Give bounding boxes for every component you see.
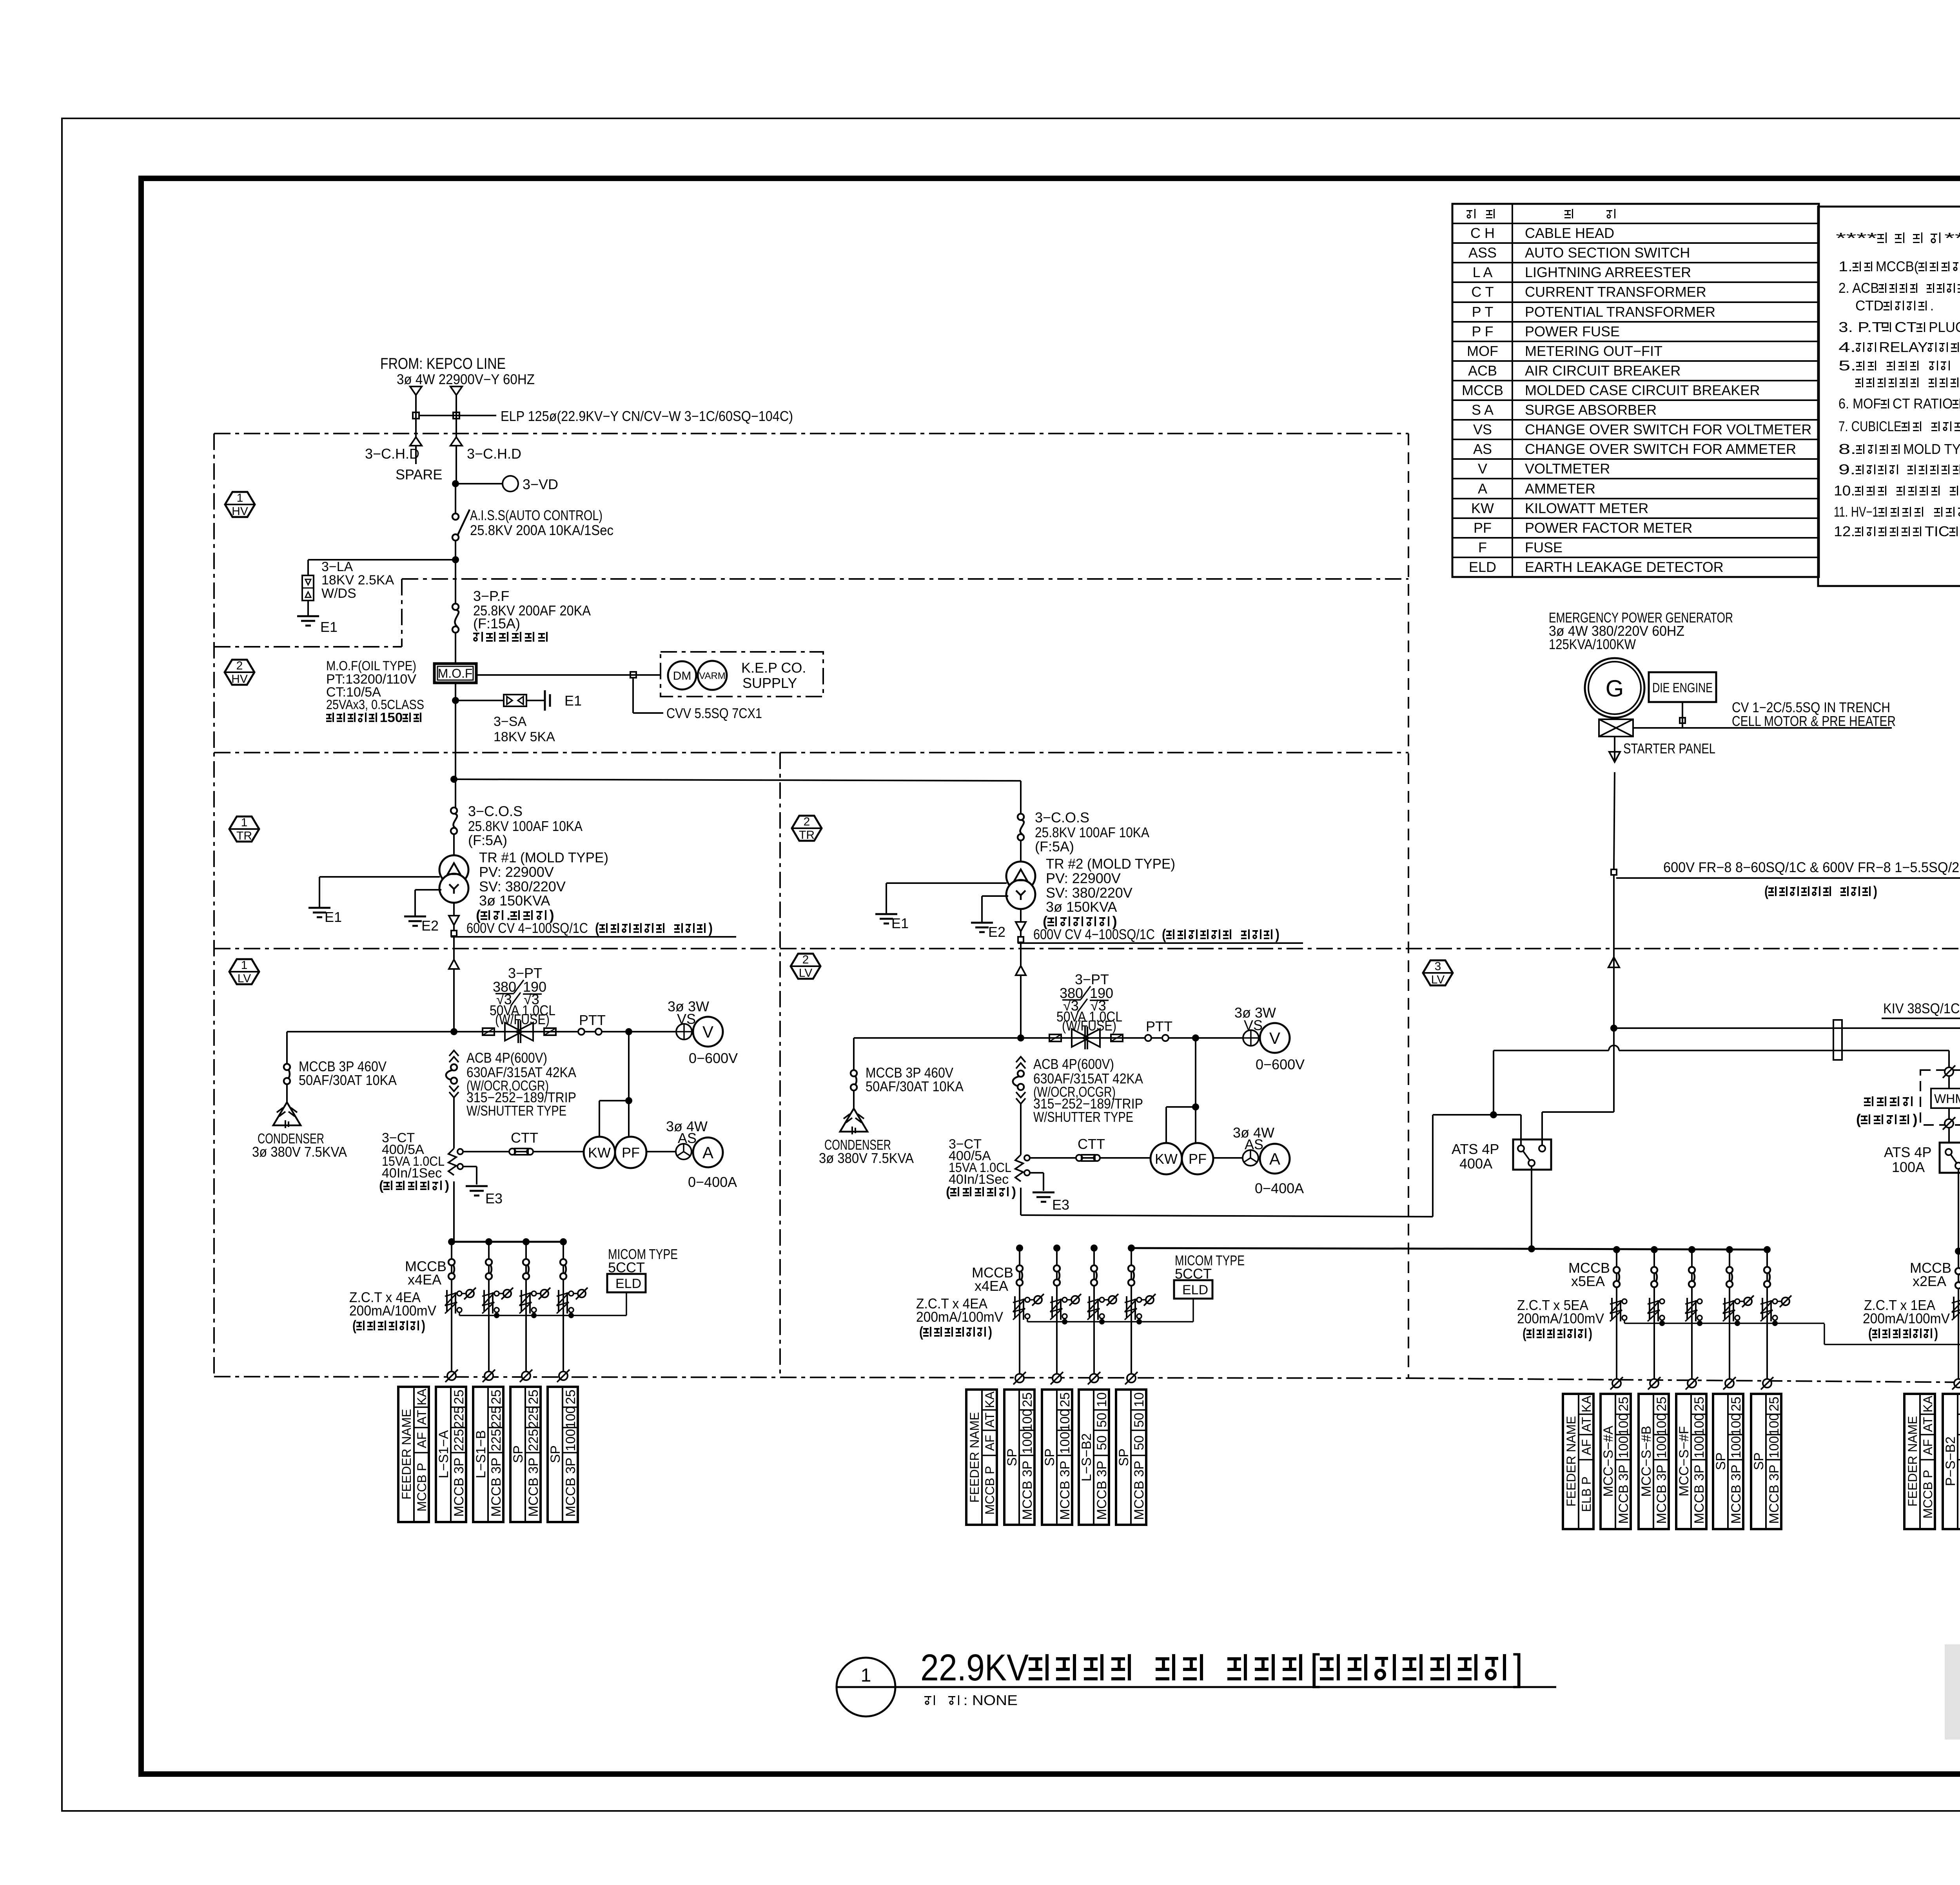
svg-text:FEEDER NAME: FEEDER NAME	[967, 1412, 982, 1502]
svg-text:PLUG−IN TYPE TEST: PLUG−IN TYPE TEST	[1929, 319, 1960, 335]
svg-text:MCCB 3P: MCCB 3P	[1767, 1464, 1782, 1524]
svg-text:(: (	[379, 1178, 384, 1193]
svg-text:40In/1Sec: 40In/1Sec	[382, 1166, 442, 1181]
svg-text:MCCB 3P: MCCB 3P	[1692, 1464, 1707, 1524]
svg-text:MCCB P: MCCB P	[415, 1463, 429, 1511]
svg-text:100: 100	[1020, 1432, 1035, 1454]
svg-text:18KV 2.5KA: 18KV 2.5KA	[321, 573, 394, 588]
svg-text:TR: TR	[236, 829, 252, 842]
svg-text:CT: CT	[1895, 319, 1916, 335]
svg-text:AT: AT	[1921, 1417, 1935, 1432]
svg-text:200mA/100mV: 200mA/100mV	[1863, 1310, 1950, 1326]
svg-text:AT: AT	[415, 1410, 429, 1425]
svg-text:100: 100	[1767, 1436, 1782, 1459]
svg-text:(F:5A): (F:5A)	[468, 832, 507, 848]
svg-text:C T: C T	[1471, 284, 1494, 300]
svg-text:25.8KV 200A 10KA/1Sec: 25.8KV 200A 10KA/1Sec	[470, 522, 613, 538]
svg-text:AMMETER: AMMETER	[1525, 481, 1595, 497]
svg-text:5CCT: 5CCT	[608, 1259, 645, 1275]
svg-text:10.: 10.	[1834, 483, 1855, 499]
svg-text:100A: 100A	[1892, 1159, 1925, 1175]
svg-text:(W/FUSE): (W/FUSE)	[495, 1011, 550, 1027]
svg-text:0−400A: 0−400A	[688, 1174, 737, 1190]
svg-text:1: 1	[861, 1665, 871, 1686]
svg-text:): )	[988, 1324, 992, 1340]
svg-text:25: 25	[1616, 1397, 1631, 1411]
svg-text:]: ]	[1513, 1647, 1523, 1689]
svg-text:7. CUBICLE: 7. CUBICLE	[1838, 418, 1902, 434]
svg-text:1.: 1.	[1838, 258, 1853, 274]
svg-text:A: A	[1269, 1150, 1280, 1168]
svg-text:ACB 4P(600V): ACB 4P(600V)	[1033, 1056, 1114, 1072]
svg-text:): )	[1588, 1325, 1592, 1341]
svg-text:TR #1 (MOLD TYPE): TR #1 (MOLD TYPE)	[479, 849, 608, 865]
svg-text:E3: E3	[1052, 1197, 1069, 1213]
svg-text:25: 25	[563, 1390, 578, 1404]
svg-text:HV: HV	[232, 505, 248, 518]
svg-text:25: 25	[1058, 1392, 1073, 1407]
svg-text:L−S1−A: L−S1−A	[436, 1430, 451, 1478]
svg-text:): )	[1012, 1185, 1016, 1199]
svg-text:0−600V: 0−600V	[689, 1050, 738, 1066]
svg-text:TIC: TIC	[1925, 523, 1949, 539]
svg-text:225: 225	[526, 1406, 541, 1429]
svg-text:SUPPLY: SUPPLY	[742, 675, 797, 691]
svg-text:ELP 125ø(22.9KV−Y CN/CV−W 3: ELP 125ø(22.9KV−Y CN/CV−W 3−1C/60SQ−104C…	[501, 408, 793, 424]
svg-text:25: 25	[1020, 1392, 1035, 1407]
svg-text:): )	[445, 1178, 449, 1193]
svg-text:.: .	[1930, 298, 1934, 314]
svg-text:MOF: MOF	[1467, 343, 1498, 359]
svg-text:3−C.O.S: 3−C.O.S	[1035, 809, 1089, 825]
svg-text:3ø 380V 7.5KVA: 3ø 380V 7.5KVA	[252, 1144, 347, 1160]
svg-text:12.: 12.	[1834, 523, 1855, 539]
svg-text:ELD: ELD	[615, 1276, 641, 1291]
svg-text:FEEDER NAME: FEEDER NAME	[399, 1409, 414, 1499]
svg-text:11. HV−1: 11. HV−1	[1834, 504, 1878, 520]
svg-text:AF: AF	[1921, 1439, 1935, 1455]
svg-text:KIV 38SQ/1Cx4L: KIV 38SQ/1Cx4L	[1883, 1000, 1960, 1016]
svg-text:****: ****	[1836, 230, 1877, 247]
svg-text:ATS 4P: ATS 4P	[1452, 1141, 1499, 1157]
svg-text:MCC−S−#B: MCC−S−#B	[1639, 1426, 1654, 1497]
svg-text:100: 100	[1616, 1436, 1631, 1459]
svg-text:9.: 9.	[1838, 461, 1856, 477]
svg-text:WHM: WHM	[1934, 1092, 1960, 1106]
svg-text:100: 100	[1058, 1432, 1073, 1454]
svg-text:MCCB 3P: MCCB 3P	[1958, 1464, 1960, 1524]
svg-text:VOLTMETER: VOLTMETER	[1525, 461, 1610, 477]
svg-text:MCCB: MCCB	[1462, 382, 1503, 398]
svg-text:POWER FACTOR METER: POWER FACTOR METER	[1525, 520, 1692, 536]
svg-text:FEEDER NAME: FEEDER NAME	[1564, 1416, 1578, 1506]
svg-text:AT: AT	[1579, 1417, 1593, 1432]
svg-text:G: G	[1606, 675, 1624, 702]
svg-text:25: 25	[452, 1390, 466, 1404]
svg-text:PF: PF	[1474, 520, 1492, 536]
svg-text:F: F	[1478, 539, 1487, 555]
svg-text:): )	[421, 1317, 425, 1333]
svg-text:LIGHTNING ARREESTER: LIGHTNING ARREESTER	[1525, 264, 1691, 280]
svg-text:0−600V: 0−600V	[1256, 1056, 1305, 1072]
svg-text:): )	[1913, 1111, 1918, 1127]
svg-text:KA: KA	[415, 1388, 429, 1405]
svg-text:MCCB 3P: MCCB 3P	[1616, 1464, 1631, 1524]
svg-text:E2: E2	[421, 918, 439, 934]
svg-text:CT RATIO: CT RATIO	[1893, 396, 1953, 412]
svg-text:400A: 400A	[1459, 1156, 1492, 1172]
svg-text:FEEDER NAME: FEEDER NAME	[1906, 1416, 1920, 1506]
svg-text:25VAx3, 0.5CLASS: 25VAx3, 0.5CLASS	[326, 697, 424, 712]
svg-text:W/SHUTTER TYPE: W/SHUTTER TYPE	[466, 1103, 566, 1119]
svg-text:6. MOF: 6. MOF	[1838, 396, 1881, 412]
svg-text:225: 225	[489, 1429, 504, 1451]
svg-text:L−S1−B: L−S1−B	[474, 1430, 488, 1479]
svg-text:V: V	[1478, 461, 1487, 477]
svg-text:(: (	[595, 920, 599, 936]
svg-text:KA: KA	[1579, 1395, 1593, 1412]
svg-text:POWER FUSE: POWER FUSE	[1525, 323, 1620, 339]
svg-text:600V FR−8 8−60SQ/1C & 600V: 600V FR−8 8−60SQ/1C & 600V FR−8 1−5.5SQ/…	[1663, 859, 1960, 875]
svg-text:PF: PF	[1189, 1151, 1207, 1167]
svg-text:****: ****	[1944, 230, 1960, 247]
svg-text:100: 100	[563, 1406, 578, 1429]
svg-text:ELD: ELD	[1182, 1283, 1208, 1297]
svg-text:1: 1	[241, 816, 248, 829]
svg-text:MCCB 3P: MCCB 3P	[1132, 1460, 1147, 1520]
svg-text:(: (	[1764, 883, 1768, 899]
svg-text:TR: TR	[799, 829, 815, 842]
svg-text:AF: AF	[983, 1435, 997, 1451]
svg-text:AS: AS	[1245, 1136, 1263, 1152]
svg-text:EARTH LEAKAGE DETECTOR: EARTH LEAKAGE DETECTOR	[1525, 559, 1724, 575]
svg-text:): )	[1873, 883, 1877, 899]
svg-text:FROM: KEPCO LINE: FROM: KEPCO LINE	[380, 355, 506, 372]
svg-text:4.: 4.	[1838, 339, 1856, 355]
svg-text:L−S−B2: L−S−B2	[1079, 1433, 1094, 1482]
svg-text:100: 100	[1729, 1436, 1744, 1459]
svg-text:3ø 150KVA: 3ø 150KVA	[479, 893, 550, 909]
svg-text:KILOWATT METER: KILOWATT METER	[1525, 500, 1648, 516]
svg-text:KA: KA	[983, 1391, 997, 1408]
svg-text:1: 1	[241, 959, 248, 972]
svg-text:SPARE: SPARE	[396, 466, 442, 483]
svg-text:AS: AS	[1473, 441, 1492, 457]
svg-text:100: 100	[1692, 1413, 1707, 1436]
svg-text:100: 100	[1654, 1413, 1669, 1436]
svg-text:KW: KW	[588, 1145, 611, 1161]
svg-text:MCCB 3P: MCCB 3P	[452, 1457, 466, 1517]
svg-text:3−P.F: 3−P.F	[473, 588, 509, 604]
svg-text:CURRENT TRANSFORMER: CURRENT TRANSFORMER	[1525, 284, 1706, 300]
svg-text:S A: S A	[1472, 402, 1494, 418]
svg-text:LV: LV	[238, 972, 251, 985]
svg-text:(: (	[919, 1324, 923, 1340]
svg-text:25.8KV 100AF 10KA: 25.8KV 100AF 10KA	[468, 818, 583, 834]
svg-text:PV: 22900V: PV: 22900V	[479, 864, 554, 880]
svg-text:AT: AT	[983, 1413, 997, 1428]
svg-text:W/SHUTTER TYPE: W/SHUTTER TYPE	[1033, 1109, 1133, 1125]
svg-text:SP: SP	[548, 1445, 563, 1463]
svg-text:MOLDED CASE CIRCUIT BREAKER: MOLDED CASE CIRCUIT BREAKER	[1525, 382, 1760, 398]
svg-text:225: 225	[489, 1406, 504, 1429]
svg-text:A: A	[1478, 481, 1487, 497]
svg-text:E1: E1	[891, 915, 909, 931]
svg-text:AIR CIRCUIT BREAKER: AIR CIRCUIT BREAKER	[1525, 363, 1681, 379]
svg-text:18KV 5KA: 18KV 5KA	[494, 729, 555, 744]
svg-text:225: 225	[526, 1429, 541, 1451]
svg-text:C H: C H	[1470, 225, 1495, 241]
svg-text:ELB P: ELB P	[1579, 1477, 1593, 1512]
svg-text:MCCB(: MCCB(	[1876, 258, 1918, 274]
svg-text:100: 100	[1654, 1436, 1669, 1459]
svg-text:AUTO SECTION SWITCH: AUTO SECTION SWITCH	[1525, 245, 1690, 261]
svg-text:3−C.O.S: 3−C.O.S	[468, 803, 523, 819]
svg-text:AS: AS	[678, 1130, 697, 1146]
svg-text:100: 100	[1058, 1409, 1073, 1431]
svg-text:50: 50	[1132, 1413, 1147, 1428]
svg-text:HV: HV	[231, 673, 248, 686]
svg-text:25: 25	[1729, 1397, 1744, 1411]
svg-text:3−LA: 3−LA	[321, 559, 353, 574]
svg-text:10: 10	[1958, 1397, 1960, 1411]
svg-text:LV: LV	[799, 967, 812, 980]
svg-text:SP: SP	[511, 1445, 526, 1463]
svg-text:PV: 22900V: PV: 22900V	[1046, 870, 1121, 886]
svg-text:CHANGE OVER SWITCH FOR AMMETER: CHANGE OVER SWITCH FOR AMMETER	[1525, 441, 1796, 457]
svg-text:E1: E1	[325, 909, 342, 925]
svg-text:3ø 380V 7.5KVA: 3ø 380V 7.5KVA	[819, 1150, 914, 1166]
svg-text:(F:15A): (F:15A)	[473, 615, 520, 631]
svg-text:SURGE ABSORBER: SURGE ABSORBER	[1525, 402, 1657, 418]
svg-text:MCCB 3P: MCCB 3P	[489, 1457, 504, 1517]
svg-text:ATS 4P: ATS 4P	[1884, 1144, 1931, 1160]
svg-text:CTT: CTT	[511, 1130, 538, 1146]
svg-text:MCCB 3P: MCCB 3P	[1654, 1464, 1669, 1524]
svg-text:40In/1Sec: 40In/1Sec	[949, 1172, 1009, 1187]
svg-text:KW: KW	[1471, 500, 1494, 516]
svg-text:): )	[709, 920, 713, 936]
svg-text:VARM: VARM	[699, 671, 726, 681]
svg-text:POTENTIAL TRANSFORMER: POTENTIAL TRANSFORMER	[1525, 304, 1715, 320]
svg-text:SV: 380/220V: SV: 380/220V	[1046, 885, 1132, 901]
svg-text:K.E.P CO.: K.E.P CO.	[741, 660, 806, 676]
svg-text:25: 25	[489, 1390, 504, 1404]
svg-text:VS: VS	[1473, 421, 1492, 437]
svg-text:MCCB 3P: MCCB 3P	[1058, 1460, 1073, 1520]
svg-text:RELAY: RELAY	[1879, 339, 1928, 355]
svg-text:50: 50	[1094, 1435, 1109, 1450]
svg-text:ACB: ACB	[1468, 363, 1497, 379]
svg-text:0−400A: 0−400A	[1255, 1180, 1304, 1196]
svg-text:MOLD TYPE: MOLD TYPE	[1903, 441, 1960, 457]
svg-text:(: (	[1162, 926, 1166, 942]
svg-text:100: 100	[1729, 1413, 1744, 1436]
svg-text:SV: 380/220V: SV: 380/220V	[479, 878, 566, 894]
svg-text:(: (	[1868, 1325, 1872, 1341]
svg-text:50: 50	[1958, 1440, 1960, 1455]
svg-text:(: (	[1523, 1325, 1526, 1341]
svg-text:KW: KW	[1155, 1151, 1178, 1167]
svg-text:3−C.H.D: 3−C.H.D	[365, 446, 419, 462]
svg-text:A.I.S.S(AUTO CONTROL): A.I.S.S(AUTO CONTROL)	[470, 507, 603, 523]
svg-text:DIE ENGINE: DIE ENGINE	[1652, 680, 1713, 695]
svg-text:CVV 5.5SQ 7CX1: CVV 5.5SQ 7CX1	[666, 705, 762, 721]
svg-text:TR #2 (MOLD TYPE): TR #2 (MOLD TYPE)	[1046, 856, 1175, 872]
svg-text:E1: E1	[320, 619, 338, 635]
svg-text:VS: VS	[1244, 1017, 1263, 1033]
svg-text:FUSE: FUSE	[1525, 539, 1563, 555]
svg-text:P T: P T	[1472, 304, 1494, 320]
svg-text:200mA/100mV: 200mA/100mV	[349, 1303, 436, 1319]
svg-text:V: V	[1269, 1029, 1280, 1047]
svg-text:M.O.F: M.O.F	[438, 666, 473, 680]
svg-text:E2: E2	[988, 924, 1005, 940]
svg-text:MCCB 3P: MCCB 3P	[526, 1457, 541, 1517]
svg-text:50AF/30AT 10KA: 50AF/30AT 10KA	[866, 1078, 964, 1094]
svg-text:AF: AF	[1579, 1439, 1593, 1455]
svg-text:MCC−S−#F: MCC−S−#F	[1677, 1426, 1691, 1497]
svg-text:CELL MOTOR & PRE HEATER: CELL MOTOR & PRE HEATER	[1732, 713, 1896, 729]
svg-text:DM: DM	[673, 669, 691, 682]
svg-text:10: 10	[1132, 1392, 1147, 1407]
svg-text:CTT: CTT	[1078, 1136, 1105, 1152]
svg-text:3. P.T: 3. P.T	[1838, 319, 1882, 335]
svg-text:MCC−S−#A: MCC−S−#A	[1601, 1426, 1616, 1497]
svg-text:3: 3	[1435, 960, 1441, 973]
svg-text:2: 2	[802, 953, 809, 966]
svg-text:10: 10	[1094, 1392, 1109, 1407]
svg-text:SP: SP	[1005, 1448, 1020, 1466]
svg-text:5CCT: 5CCT	[1175, 1266, 1212, 1282]
svg-text:(F:5A): (F:5A)	[1035, 838, 1074, 855]
svg-text:25: 25	[1767, 1397, 1782, 1411]
svg-text:CHANGE OVER SWITCH FOR VOLTMET: CHANGE OVER SWITCH FOR VOLTMETER	[1525, 421, 1811, 437]
svg-text:(: (	[1856, 1111, 1861, 1127]
svg-text:200mA/100mV: 200mA/100mV	[1517, 1310, 1604, 1326]
svg-text:CTD: CTD	[1855, 298, 1884, 314]
svg-text:5.: 5.	[1838, 357, 1856, 374]
svg-text:600V CV 4−100SQ/1C: 600V CV 4−100SQ/1C	[466, 920, 588, 936]
svg-text:ELD: ELD	[1469, 559, 1496, 575]
svg-text:METERING OUT−FIT: METERING OUT−FIT	[1525, 343, 1662, 359]
svg-text:M.O.F(OIL TYPE): M.O.F(OIL TYPE)	[326, 659, 416, 673]
svg-text:MCCB P: MCCB P	[1921, 1470, 1935, 1519]
svg-text:50AF/30AT 10KA: 50AF/30AT 10KA	[299, 1072, 397, 1088]
svg-text:SP: SP	[1116, 1448, 1131, 1466]
svg-text:x4EA: x4EA	[975, 1278, 1008, 1294]
svg-text:(W/FUSE): (W/FUSE)	[1062, 1018, 1116, 1034]
svg-text:VS: VS	[677, 1011, 696, 1027]
svg-text:): )	[1934, 1325, 1938, 1341]
svg-text:MCCB P: MCCB P	[983, 1466, 997, 1515]
svg-text:L A: L A	[1473, 264, 1493, 280]
svg-text:x5EA: x5EA	[1571, 1273, 1605, 1289]
svg-text:MCCB 3P: MCCB 3P	[1020, 1460, 1035, 1520]
svg-text:3−C.H.D: 3−C.H.D	[467, 446, 521, 462]
svg-text:200mA/100mV: 200mA/100mV	[916, 1309, 1003, 1325]
svg-text:150: 150	[380, 710, 403, 725]
svg-text:100: 100	[1692, 1436, 1707, 1459]
svg-text:100: 100	[563, 1429, 578, 1451]
svg-text:P F: P F	[1472, 323, 1493, 339]
svg-text:25.8KV 100AF 10KA: 25.8KV 100AF 10KA	[1035, 824, 1149, 840]
svg-text:PF: PF	[622, 1145, 640, 1161]
svg-text:50: 50	[1094, 1413, 1109, 1428]
svg-text:600V CV 4−100SQ/1C: 600V CV 4−100SQ/1C	[1033, 926, 1155, 942]
svg-text:2: 2	[804, 815, 810, 828]
svg-text:KA: KA	[1921, 1395, 1935, 1412]
svg-text:125KVA/100KW: 125KVA/100KW	[1549, 636, 1636, 652]
svg-text:100: 100	[1020, 1409, 1035, 1431]
svg-text:P−S−B2: P−S−B2	[1943, 1437, 1958, 1486]
svg-text:E1: E1	[564, 693, 582, 709]
svg-text:E3: E3	[485, 1190, 503, 1206]
svg-text:ASS: ASS	[1468, 245, 1497, 261]
svg-text:8.: 8.	[1838, 441, 1856, 457]
svg-text:22.9KV: 22.9KV	[920, 1647, 1029, 1689]
svg-text:V: V	[702, 1023, 713, 1041]
svg-text:): )	[1276, 926, 1280, 942]
svg-text:ACB 4P(600V): ACB 4P(600V)	[466, 1050, 547, 1066]
svg-text:50: 50	[1132, 1435, 1147, 1450]
svg-text:SP: SP	[1042, 1448, 1057, 1466]
svg-text:(: (	[352, 1317, 356, 1333]
svg-text:(: (	[946, 1185, 951, 1199]
svg-text:3−VD: 3−VD	[523, 476, 558, 492]
svg-text:x4EA: x4EA	[408, 1272, 441, 1288]
svg-text:MCCB 3P: MCCB 3P	[1094, 1460, 1109, 1520]
svg-text:AF: AF	[415, 1432, 429, 1448]
svg-text:CABLE HEAD: CABLE HEAD	[1525, 225, 1614, 241]
svg-text:50: 50	[1958, 1417, 1960, 1432]
svg-text:100: 100	[1767, 1413, 1782, 1436]
svg-text:225: 225	[452, 1429, 466, 1451]
svg-text:25: 25	[1654, 1397, 1669, 1411]
svg-text:LV: LV	[1431, 973, 1445, 986]
svg-text:SP: SP	[1713, 1452, 1728, 1470]
svg-text:PTT: PTT	[579, 1012, 606, 1028]
svg-text:: NONE: : NONE	[964, 1692, 1018, 1708]
svg-text:3ø 150KVA: 3ø 150KVA	[1046, 899, 1117, 915]
svg-text:PTT: PTT	[1146, 1018, 1172, 1034]
svg-text:A: A	[702, 1143, 713, 1162]
svg-text:3ø 4W 22900V−Y 60HZ: 3ø 4W 22900V−Y 60HZ	[397, 371, 535, 387]
svg-text:SP: SP	[1751, 1452, 1766, 1470]
svg-text:25: 25	[1692, 1397, 1707, 1411]
svg-text:STARTER PANEL: STARTER PANEL	[1623, 740, 1715, 757]
svg-text:x2EA: x2EA	[1913, 1273, 1946, 1289]
svg-text:W/DS: W/DS	[321, 586, 356, 601]
svg-text:[: [	[1310, 1647, 1320, 1689]
svg-text:3−SA: 3−SA	[494, 714, 526, 729]
svg-text:100: 100	[1616, 1413, 1631, 1436]
svg-text:2. ACB: 2. ACB	[1838, 280, 1879, 296]
svg-text:MCCB 3P: MCCB 3P	[563, 1457, 578, 1517]
svg-text:25: 25	[526, 1390, 541, 1404]
svg-text:MCCB 3P: MCCB 3P	[1729, 1464, 1744, 1524]
svg-text:2: 2	[236, 659, 243, 672]
svg-text:225: 225	[452, 1406, 466, 1429]
svg-text:1: 1	[237, 492, 243, 504]
